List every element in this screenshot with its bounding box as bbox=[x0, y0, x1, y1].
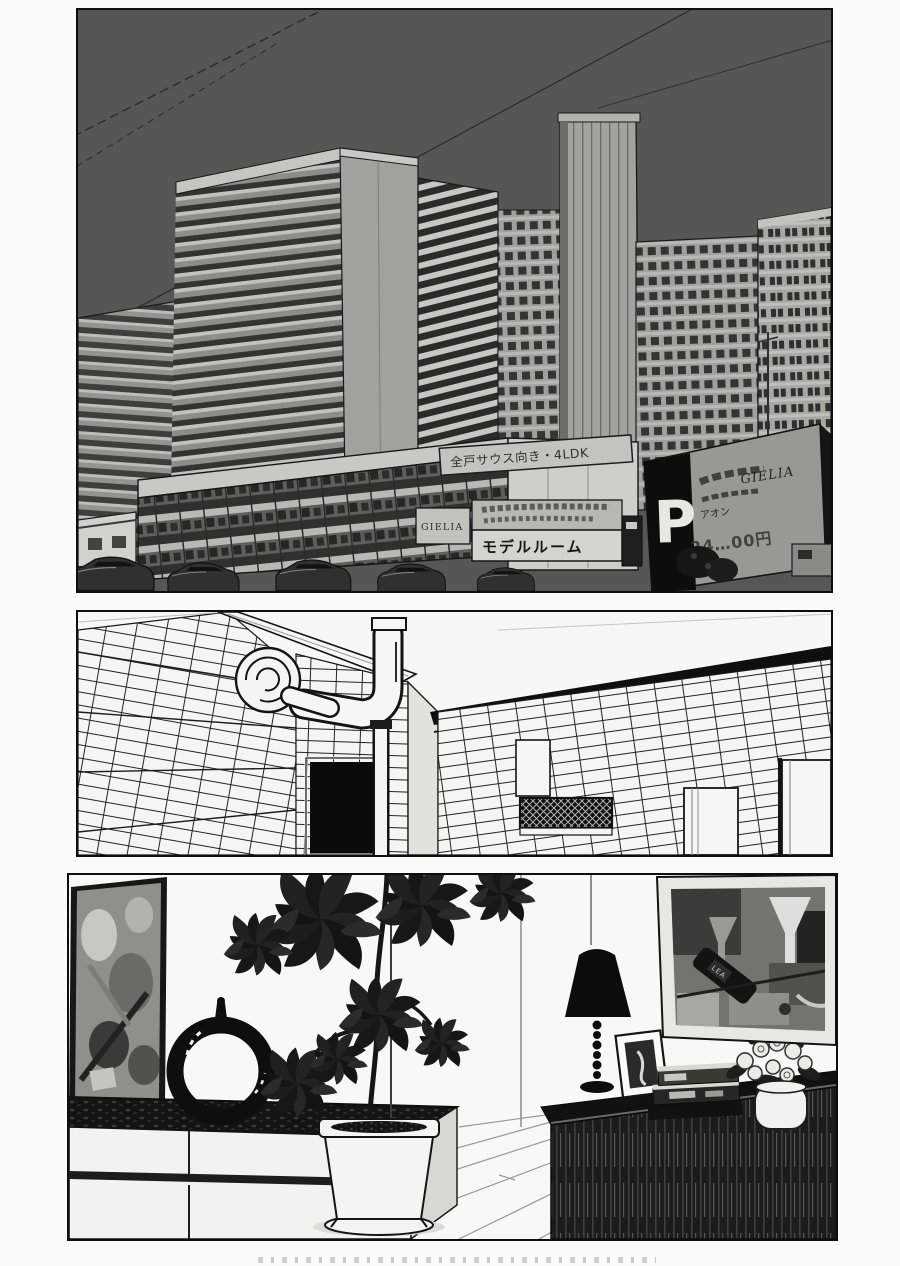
white-pot bbox=[319, 1119, 439, 1235]
pipe-cap bbox=[372, 618, 406, 630]
dark-doorway bbox=[310, 762, 374, 855]
pipe-clamp bbox=[370, 720, 392, 729]
book-spine-label bbox=[669, 1091, 695, 1099]
cropped-caption-fragment bbox=[258, 1257, 656, 1263]
model-room-sign: モデルルーム bbox=[482, 538, 584, 556]
manga-page: 全戸サウス向き・4LDK GIELIA モデルルーム P bbox=[0, 0, 900, 1266]
panel-tiled-interior bbox=[76, 610, 833, 857]
lattice-window bbox=[520, 798, 612, 835]
kiosk-label bbox=[626, 522, 637, 529]
living-room-illustration: LEA bbox=[69, 875, 836, 1239]
panel-living-room: LEA bbox=[67, 873, 838, 1241]
book-spine-label bbox=[664, 1073, 686, 1081]
far-right-door bbox=[778, 758, 831, 855]
panel-city-exterior: 全戸サウス向き・4LDK GIELIA モデルルーム P bbox=[76, 8, 833, 593]
gielia-board-text: GIELIA bbox=[421, 522, 463, 533]
cubist-painting: LEA bbox=[657, 875, 836, 1045]
pot-soil bbox=[331, 1121, 427, 1133]
white-door bbox=[684, 788, 738, 855]
wall-corner bbox=[408, 682, 438, 855]
white-cabinet-door bbox=[516, 740, 550, 796]
book-stack bbox=[646, 1062, 743, 1120]
city-illustration: 全戸サウス向き・4LDK GIELIA モデルルーム P bbox=[78, 10, 831, 591]
left-abstract-painting bbox=[69, 875, 169, 1115]
tiled-interior-illustration bbox=[78, 612, 831, 855]
van bbox=[792, 544, 831, 576]
